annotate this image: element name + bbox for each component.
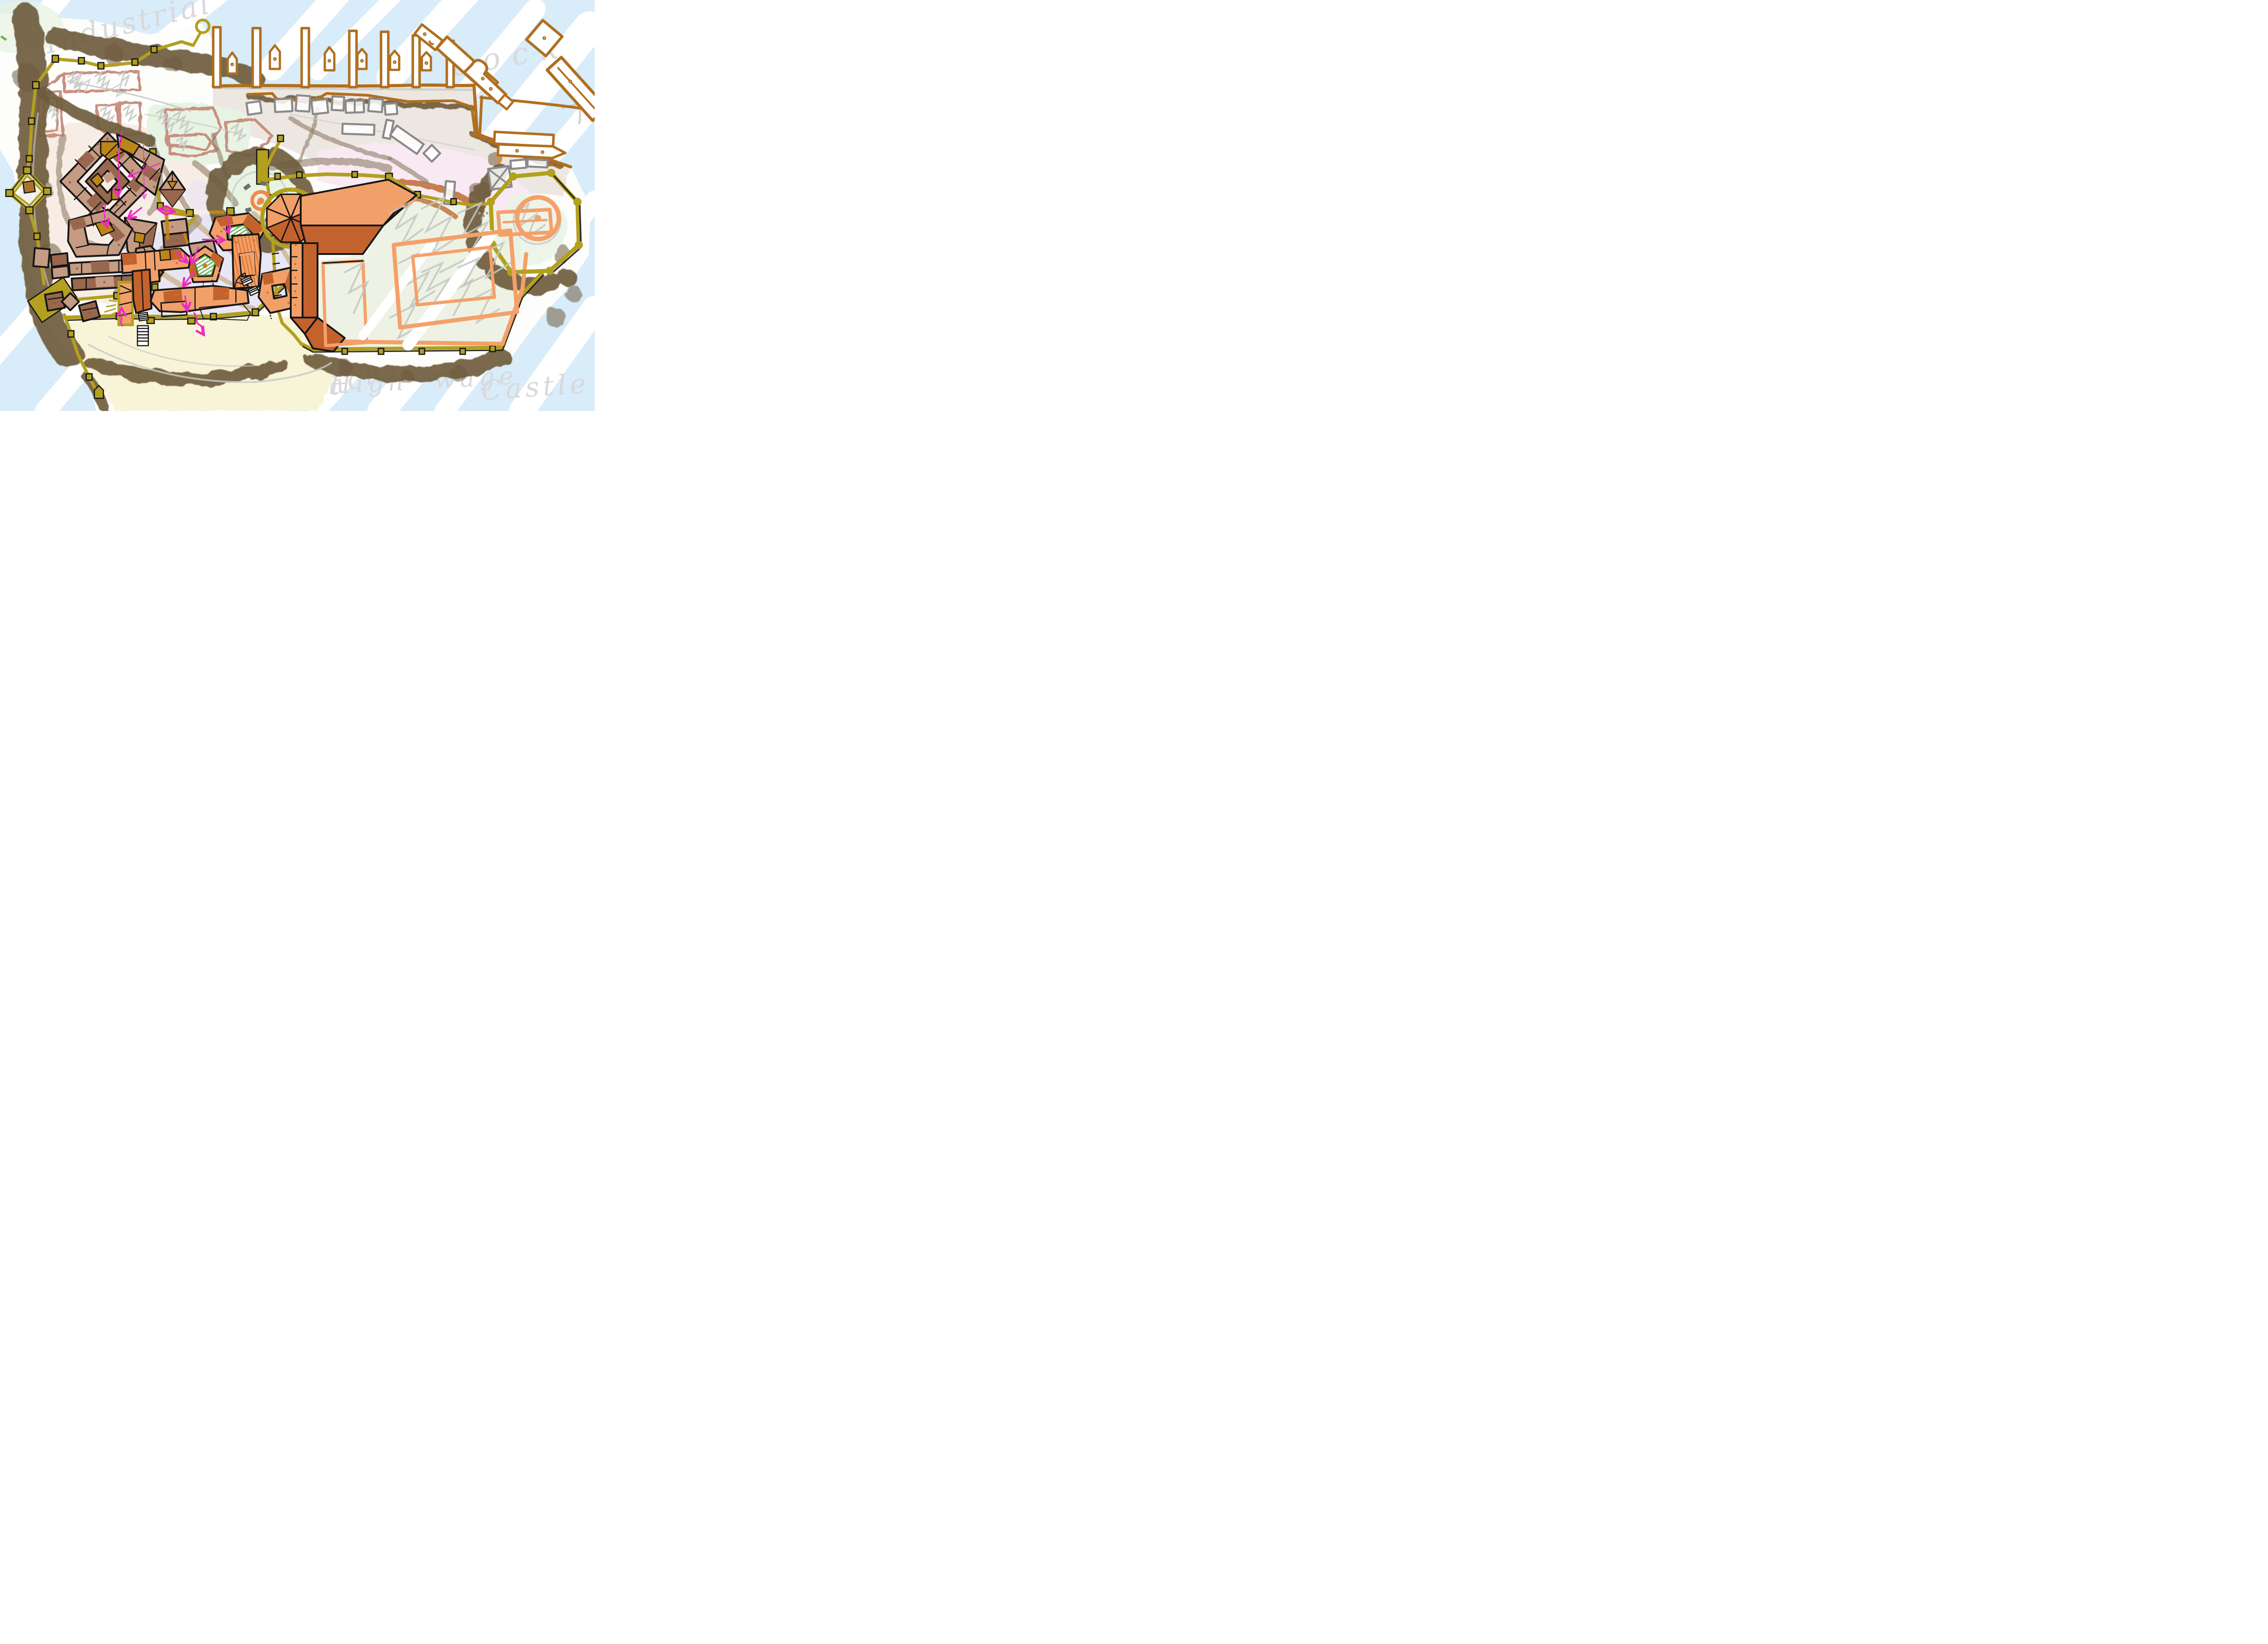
east-mole-hook <box>480 97 482 132</box>
braced-warehouse <box>488 166 512 190</box>
map-canvas: Industrial dock Castle High wage Beach <box>0 0 595 411</box>
